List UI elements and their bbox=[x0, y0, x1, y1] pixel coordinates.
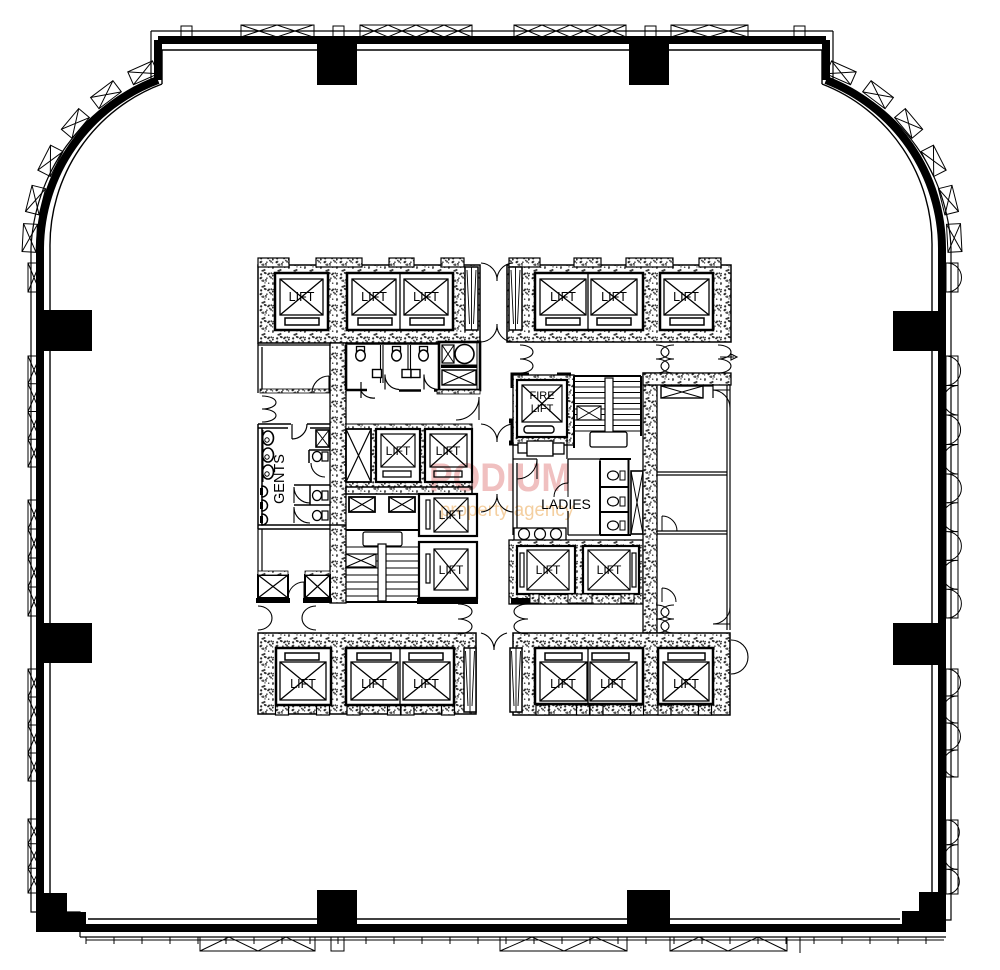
svg-text:LIFT: LIFT bbox=[550, 677, 576, 691]
svg-text:LIFT: LIFT bbox=[386, 444, 411, 458]
svg-text:LIFT: LIFT bbox=[531, 403, 554, 415]
svg-text:LIFT: LIFT bbox=[289, 290, 315, 304]
svg-text:LIFT: LIFT bbox=[361, 677, 387, 691]
svg-text:FIRE: FIRE bbox=[529, 390, 554, 402]
svg-text:LIFT: LIFT bbox=[361, 290, 387, 304]
svg-text:LIFT: LIFT bbox=[290, 677, 316, 691]
svg-text:LIFT: LIFT bbox=[550, 290, 576, 304]
svg-text:LIFT: LIFT bbox=[536, 563, 561, 577]
svg-text:LIFT: LIFT bbox=[439, 563, 464, 577]
svg-text:LIFT: LIFT bbox=[673, 677, 699, 691]
svg-text:LIFT: LIFT bbox=[673, 290, 699, 304]
svg-text:LIFT: LIFT bbox=[413, 677, 439, 691]
svg-text:LIFT: LIFT bbox=[600, 677, 626, 691]
svg-text:LIFT: LIFT bbox=[413, 290, 439, 304]
svg-text:PODIUM: PODIUM bbox=[429, 456, 571, 500]
svg-text:GENTS: GENTS bbox=[272, 454, 288, 504]
svg-text:LIFT: LIFT bbox=[597, 563, 622, 577]
svg-text:property agency: property agency bbox=[440, 500, 574, 521]
svg-text:LIFT: LIFT bbox=[601, 290, 627, 304]
